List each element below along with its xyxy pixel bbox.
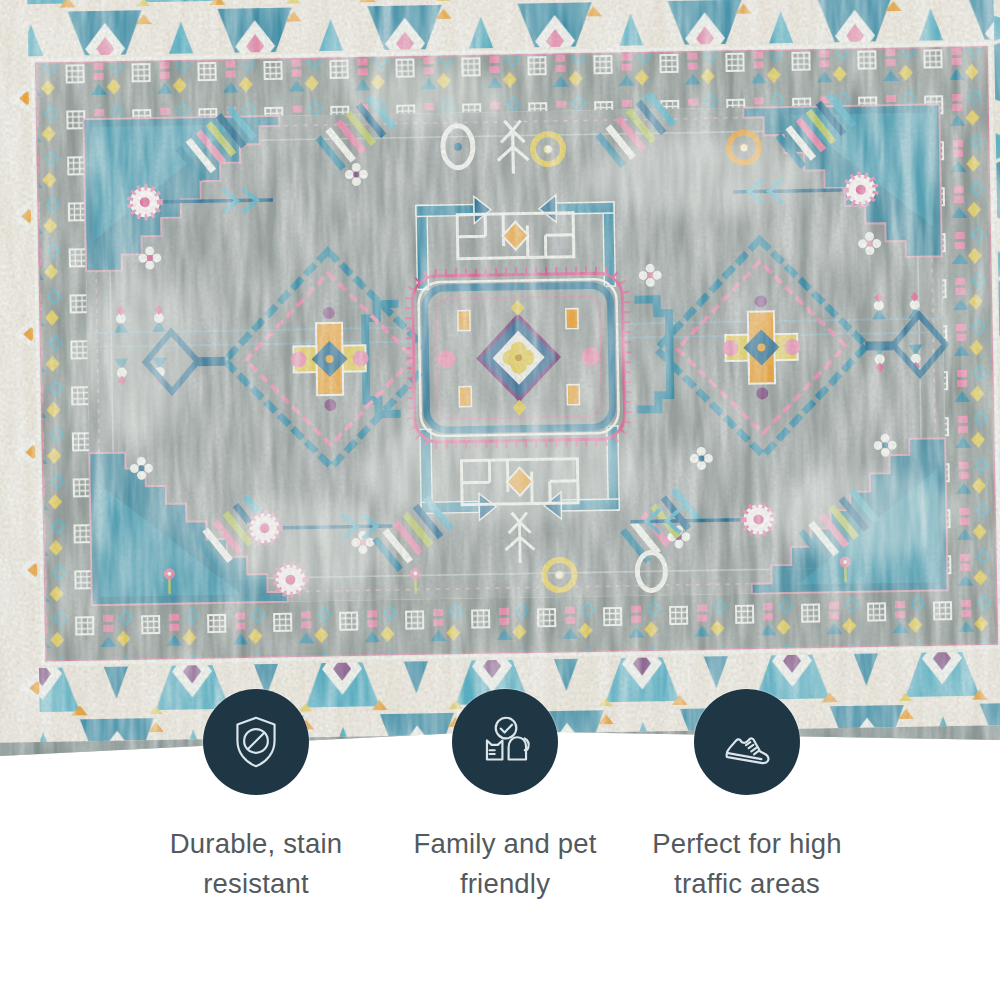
product-feature-image: Durable, stain resistant Family and pet … [0, 0, 1000, 1000]
feature-high-traffic: Perfect for high traffic areas [627, 689, 867, 904]
shield-stain-icon [223, 709, 289, 775]
feature-family-pet: Family and pet friendly [385, 689, 625, 904]
feature-caption: Durable, stain resistant [140, 824, 372, 904]
feature-badge [694, 689, 800, 795]
feature-caption: Perfect for high traffic areas [631, 824, 863, 904]
rug-photo [0, 0, 1000, 762]
feature-badge [452, 689, 558, 795]
feature-durable: Durable, stain resistant [136, 689, 376, 904]
feature-badge [203, 689, 309, 795]
family-pet-icon [472, 709, 538, 775]
feature-caption: Family and pet friendly [389, 824, 621, 904]
feature-list: Durable, stain resistant Family and pet … [0, 689, 1000, 1000]
sneaker-icon [714, 709, 780, 775]
